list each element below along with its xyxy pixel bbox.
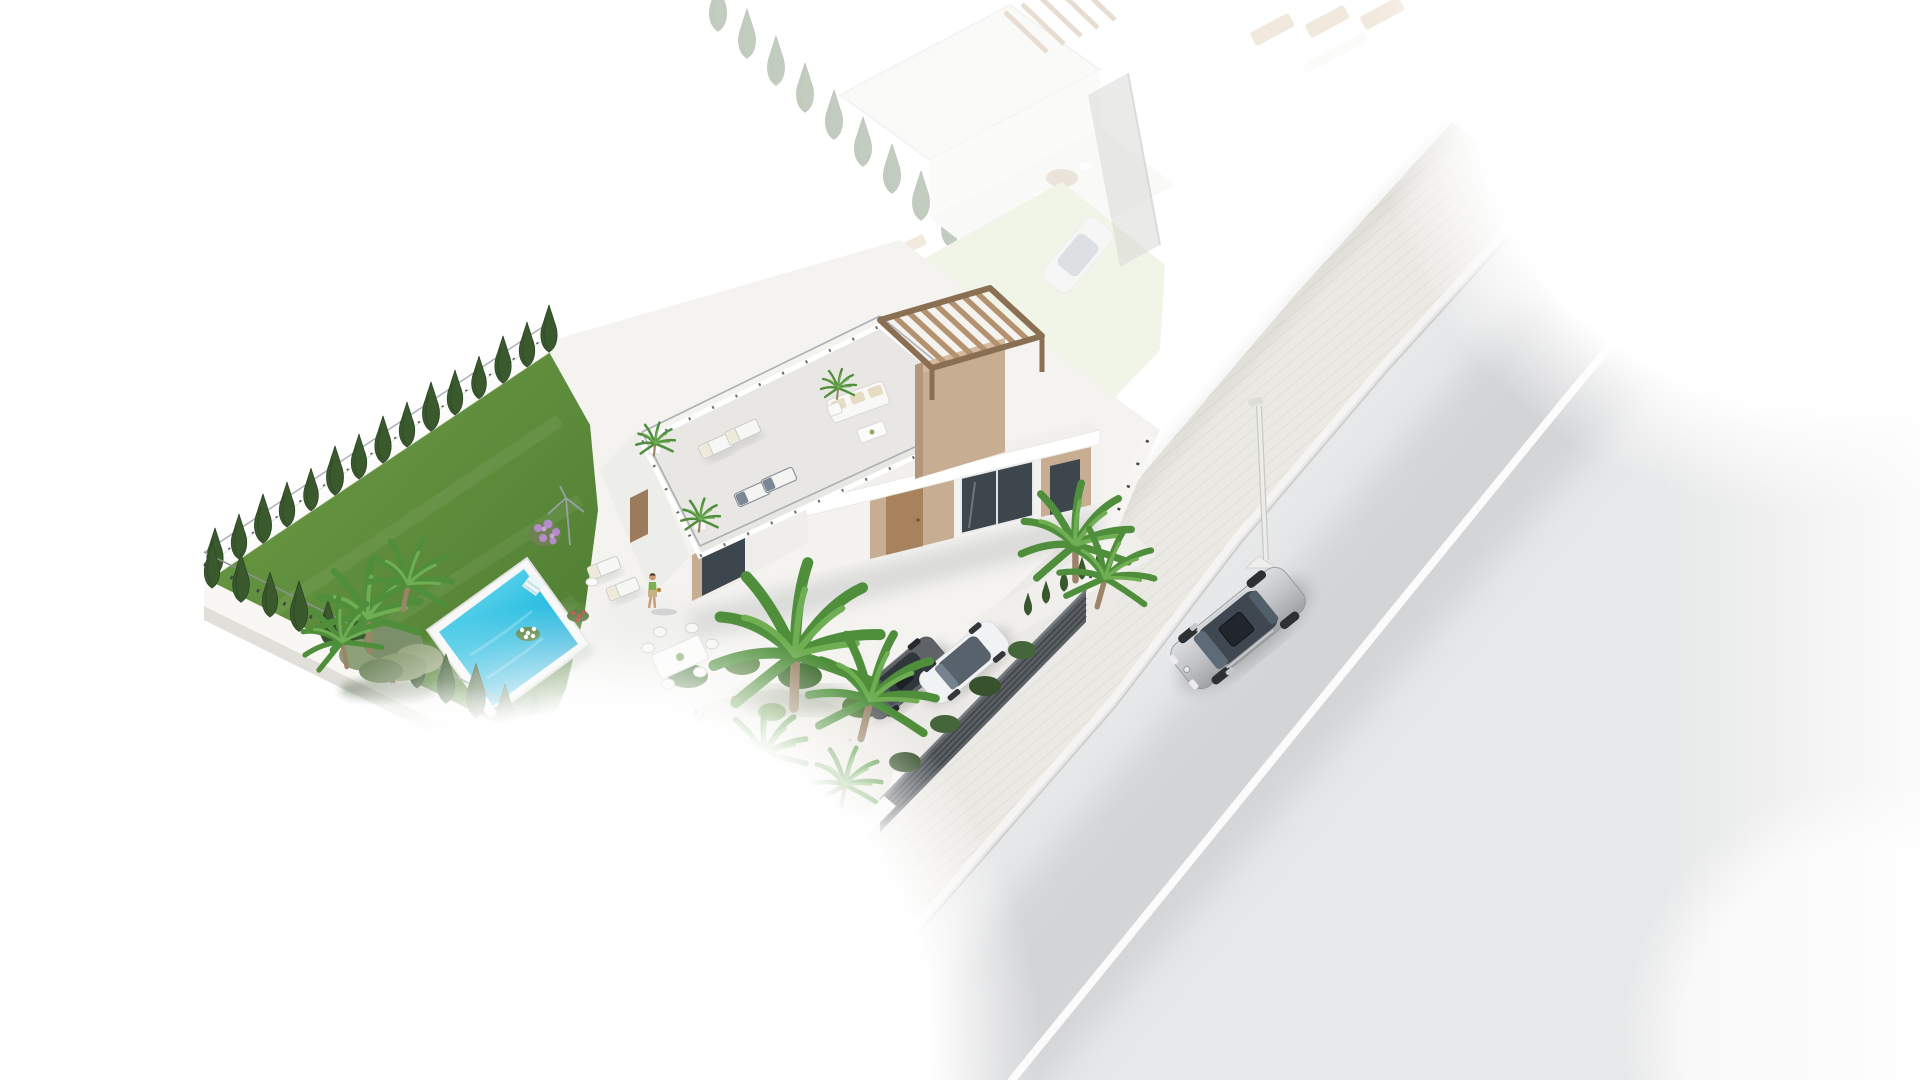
- cypress-tree: [304, 468, 319, 511]
- cypress-tree: [739, 9, 756, 59]
- cypress-tree: [423, 382, 440, 432]
- cypress-tree: [519, 322, 534, 367]
- scene-svg: [0, 0, 1920, 1080]
- cypress-tree: [710, 0, 727, 31]
- west-door: [630, 489, 648, 543]
- cypress-tree: [447, 370, 462, 415]
- cypress-tree: [541, 305, 557, 352]
- cypress-tree: [327, 446, 344, 496]
- cypress-tree: [797, 63, 814, 113]
- cypress-tree: [279, 482, 294, 527]
- cypress-tree: [768, 36, 785, 86]
- cypress-tree: [913, 171, 930, 221]
- cypress-tree: [255, 494, 272, 544]
- cypress-tree: [826, 90, 843, 140]
- cypress-tree: [855, 117, 872, 167]
- cypress-tree: [375, 416, 391, 463]
- side-table: [586, 578, 598, 586]
- door-handle: [916, 518, 919, 521]
- cypress-tree: [495, 336, 511, 383]
- cypress-tree: [399, 402, 414, 447]
- render-canvas: [0, 0, 1920, 1080]
- cypress-tree: [231, 514, 246, 559]
- cypress-tree: [884, 144, 901, 194]
- cypress-tree: [351, 434, 366, 479]
- cypress-tree: [472, 356, 487, 399]
- handbag: [657, 588, 661, 592]
